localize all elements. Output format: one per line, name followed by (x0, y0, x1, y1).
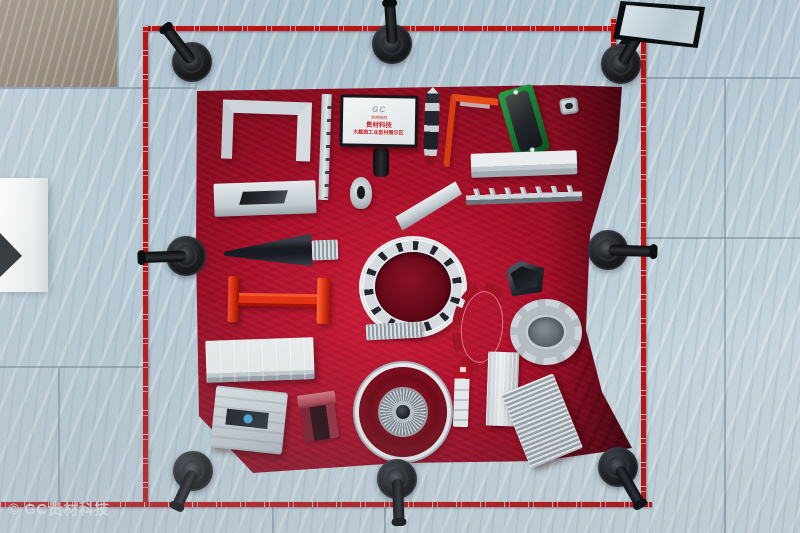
stanchion-pole (608, 245, 654, 258)
stanchion-middle-right (588, 230, 628, 270)
stanchion-top-right (601, 44, 641, 84)
stanchion-pole (140, 251, 186, 264)
exhibition-photo: GC 贵材铝材 贵材科技 大截面工业型材展示区 © GC贵材科技 (0, 0, 800, 533)
stanchion-pole (384, 2, 398, 45)
stanchion-bottom-right (598, 447, 638, 487)
photo-watermark: © GC贵材科技 (8, 498, 110, 519)
stanchion-bottom-middle (377, 459, 417, 499)
stanchion-top-left (172, 42, 212, 82)
stanchion-pole (392, 479, 405, 523)
stanchion-top-middle (372, 24, 412, 64)
stanchion-bottom-left (173, 451, 213, 491)
stanchions-layer (0, 0, 800, 533)
stanchion-middle-left (166, 236, 206, 276)
